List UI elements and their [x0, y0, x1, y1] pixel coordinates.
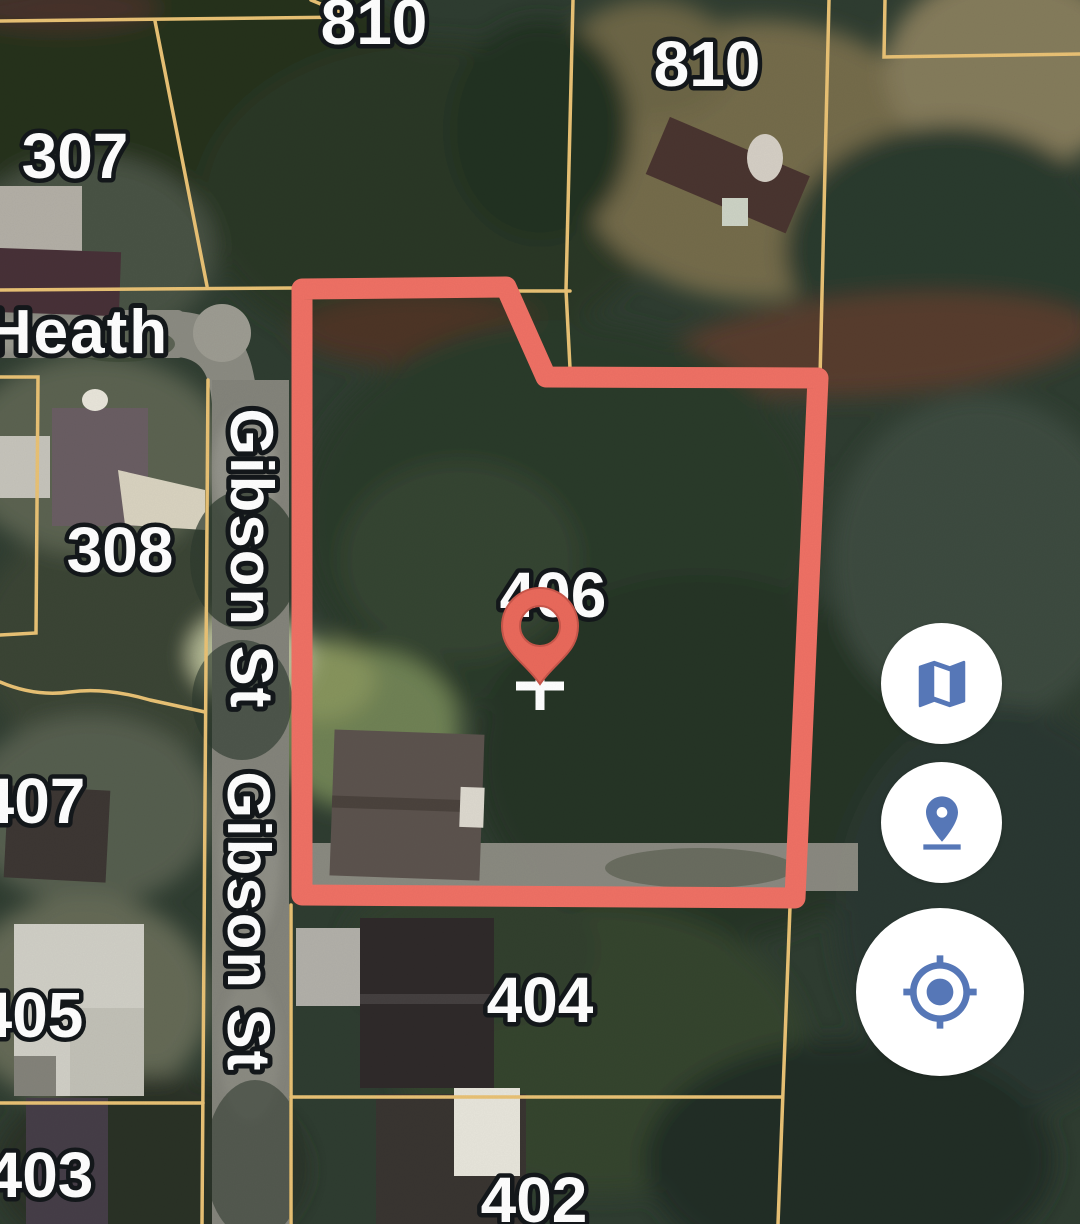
- map-canvas[interactable]: 810 810 307 308 406 407 405 403 404 402 …: [0, 0, 1080, 1224]
- dropped-pin-button[interactable]: [881, 762, 1002, 883]
- my-location-icon: [900, 952, 980, 1032]
- map-view-button[interactable]: [881, 623, 1002, 744]
- my-location-button[interactable]: [856, 908, 1024, 1076]
- pin-drop-icon: [910, 791, 974, 855]
- map-icon: [911, 653, 973, 715]
